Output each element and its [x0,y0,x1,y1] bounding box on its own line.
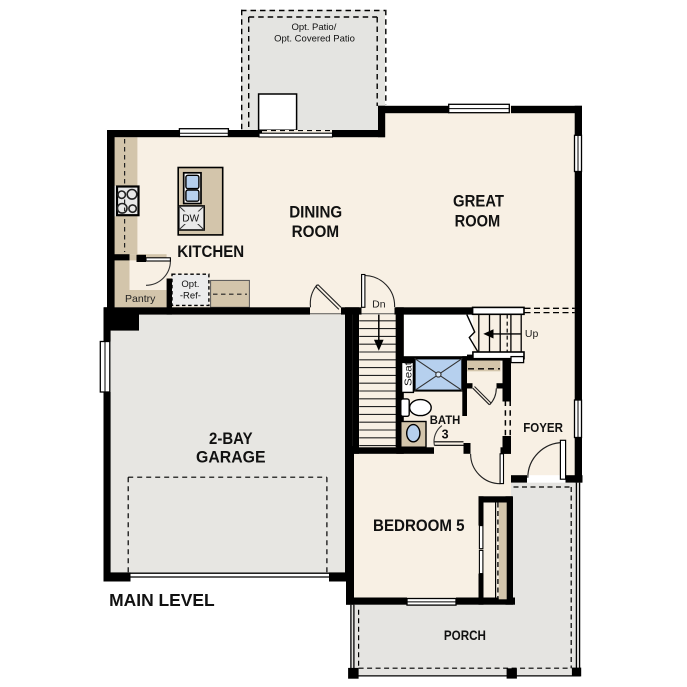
svg-text:MAIN LEVEL: MAIN LEVEL [109,590,215,610]
svg-text:DINING: DINING [289,204,342,222]
svg-text:FOYER: FOYER [523,421,563,435]
svg-text:DW: DW [182,213,199,224]
svg-text:Opt. Patio/: Opt. Patio/ [291,22,336,33]
svg-text:-Ref-: -Ref- [180,290,201,301]
svg-text:PORCH: PORCH [444,628,486,643]
svg-text:Seat: Seat [402,362,414,386]
svg-text:ROOM: ROOM [455,212,501,230]
svg-text:GREAT: GREAT [453,192,504,210]
svg-text:ROOM: ROOM [292,223,340,241]
svg-text:BEDROOM 5: BEDROOM 5 [373,517,465,535]
svg-text:KITCHEN: KITCHEN [177,243,244,261]
svg-text:BATH: BATH [430,414,461,427]
svg-text:Dn: Dn [372,298,386,310]
svg-text:Opt.: Opt. [181,279,199,290]
svg-text:3: 3 [442,427,449,441]
svg-text:Up: Up [525,328,539,340]
svg-text:Pantry: Pantry [125,293,156,305]
svg-text:2-BAY: 2-BAY [209,430,253,448]
svg-text:Opt. Covered Patio: Opt. Covered Patio [274,33,355,44]
svg-text:GARAGE: GARAGE [196,448,266,466]
